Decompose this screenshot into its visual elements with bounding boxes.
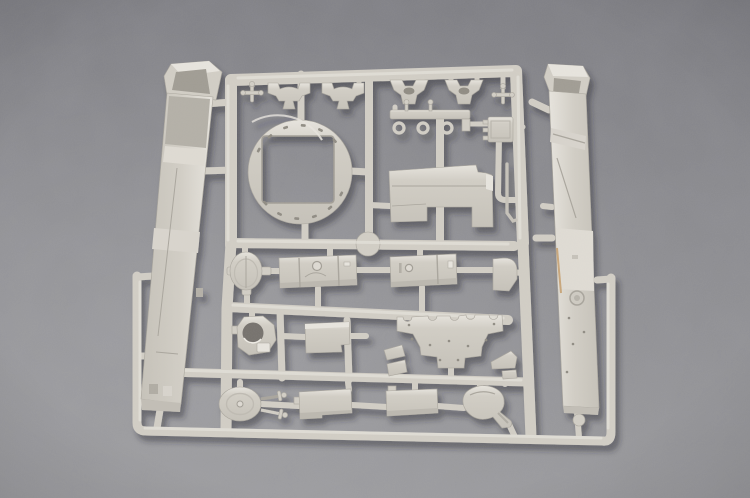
vignette-overlay: [0, 0, 750, 498]
photo-of-model-kit-sprue: [0, 0, 750, 498]
sprue-photo-canvas: [0, 0, 750, 498]
